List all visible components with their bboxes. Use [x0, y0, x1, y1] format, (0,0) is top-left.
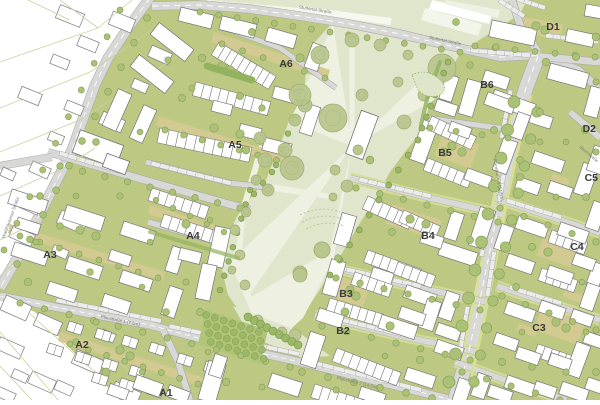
svg-text:B5: B5 — [438, 147, 452, 159]
svg-text:C5: C5 — [585, 172, 599, 184]
svg-text:B3: B3 — [339, 288, 353, 300]
svg-text:A6: A6 — [279, 58, 293, 70]
svg-text:C4: C4 — [570, 241, 584, 253]
svg-text:A3: A3 — [43, 249, 57, 261]
svg-text:A4: A4 — [186, 230, 200, 242]
svg-text:B4: B4 — [421, 230, 435, 242]
svg-text:A2: A2 — [75, 339, 89, 351]
svg-text:C3: C3 — [532, 322, 546, 334]
svg-text:D2: D2 — [583, 123, 597, 135]
svg-text:B6: B6 — [480, 79, 494, 91]
svg-text:A5: A5 — [228, 139, 242, 151]
svg-text:A1: A1 — [159, 387, 173, 399]
svg-text:D1: D1 — [546, 21, 560, 33]
svg-text:B2: B2 — [336, 325, 350, 337]
